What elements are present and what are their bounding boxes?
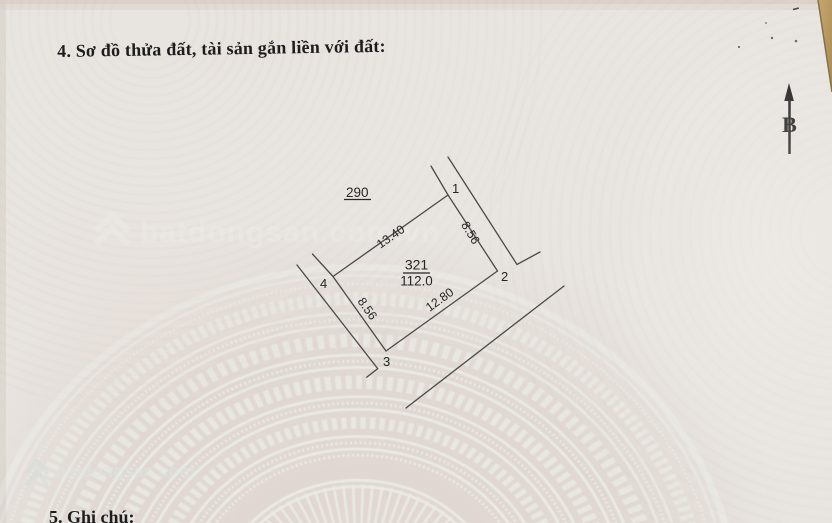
svg-text:batdongsan.com: batdongsan.com bbox=[55, 461, 195, 481]
